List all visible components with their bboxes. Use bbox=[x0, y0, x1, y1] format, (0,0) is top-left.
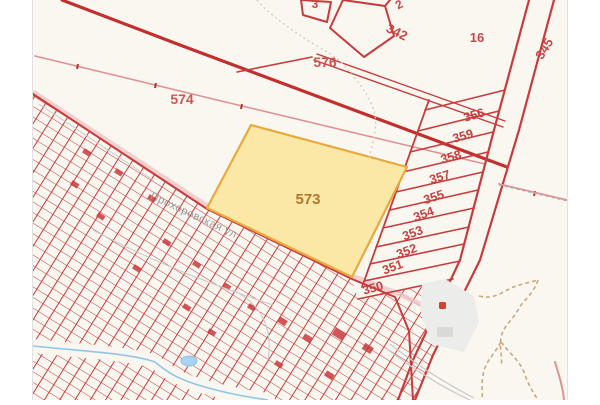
map-viewport[interactable]: 5745765733423216345356359358357355354353… bbox=[32, 0, 568, 400]
road-corridor-345 bbox=[398, 0, 554, 400]
page: { "map": { "title": "cadastral-map-view"… bbox=[0, 0, 600, 400]
parcel-label-573[interactable]: 573 bbox=[295, 191, 320, 208]
parcel-label-2[interactable]: 2 bbox=[393, 0, 406, 12]
dirt-tracks bbox=[479, 280, 538, 400]
parcel-label-358[interactable]: 358 bbox=[439, 148, 463, 167]
gray-building bbox=[437, 327, 453, 337]
parcel-label-16[interactable]: 16 bbox=[470, 30, 484, 45]
pink-track bbox=[555, 362, 564, 400]
parcel-label-359[interactable]: 359 bbox=[451, 127, 475, 146]
pond bbox=[181, 356, 197, 366]
parcel-label-356[interactable]: 356 bbox=[462, 106, 486, 125]
parcel-label-357[interactable]: 357 bbox=[428, 167, 452, 186]
east-dashed-boundary bbox=[499, 184, 567, 201]
parcel-label-576[interactable]: 576 bbox=[313, 54, 337, 70]
parcel-label-353[interactable]: 353 bbox=[400, 223, 424, 243]
parcel-label-3[interactable]: 3 bbox=[312, 0, 319, 11]
parcel-label-345[interactable]: 345 bbox=[532, 35, 556, 61]
parcel-label-354[interactable]: 354 bbox=[411, 204, 435, 224]
parcel-label-355[interactable]: 355 bbox=[422, 187, 446, 207]
building-marker[interactable] bbox=[439, 302, 446, 309]
parcel-label-574[interactable]: 574 bbox=[170, 91, 194, 107]
map-canvas: 5745765733423216345356359358357355354353… bbox=[33, 0, 567, 400]
